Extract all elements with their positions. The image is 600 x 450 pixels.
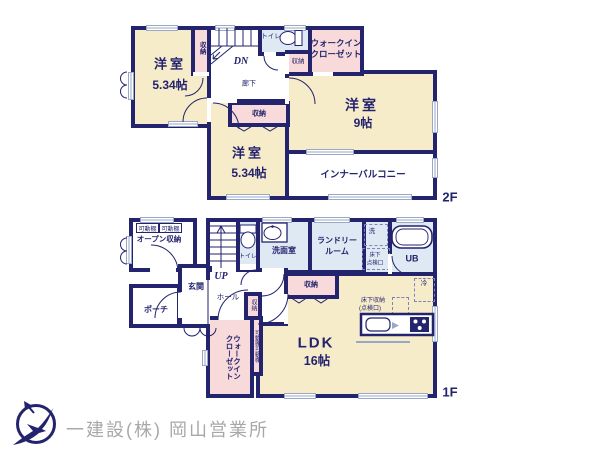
company-logo — [13, 401, 55, 445]
underfloor-hatch-label: 床下 — [369, 253, 380, 259]
closet-label: 収納 — [198, 42, 205, 55]
window-marker — [328, 194, 412, 200]
wic-label-line: クローゼット — [226, 317, 234, 397]
toilet-label: トイレ — [261, 34, 281, 41]
shutter-arc — [121, 72, 128, 85]
door-opening — [313, 72, 333, 76]
room-1f-laundry — [308, 218, 366, 274]
window-marker — [202, 350, 208, 366]
room-name-label: 洋室 — [345, 98, 379, 112]
window-marker — [432, 158, 438, 178]
window-marker — [215, 25, 235, 31]
underfloor-storage-label: (点検口) — [359, 306, 381, 312]
open-storage-label: オープン収納 — [137, 235, 182, 243]
room-1f-stairs — [206, 218, 240, 270]
washer-label: 洗 — [369, 229, 376, 236]
wic-label: クローゼット — [310, 50, 361, 59]
shelf-tag-label: 可動棚 — [138, 224, 156, 233]
window-marker — [284, 393, 316, 399]
floor-tag-1f: 1F — [442, 385, 457, 400]
underfloor-storage-label: 床下収納 — [361, 298, 385, 304]
wic-label-line: ウォークイン — [233, 317, 241, 397]
room-size-label: 9帖 — [354, 117, 373, 129]
room-size-label: 5.34帖 — [231, 167, 266, 179]
window-marker — [314, 217, 350, 223]
room-name-label: LDK — [298, 336, 335, 351]
laundry-label: ルーム — [325, 248, 349, 256]
washroom-label: 洗面室 — [272, 247, 296, 255]
window-marker — [168, 121, 198, 127]
fridge-label: 冷 — [421, 281, 428, 288]
window-marker — [128, 72, 134, 100]
closet-label: 収納 — [250, 299, 256, 311]
wic-label: ウォークイン — [310, 39, 361, 48]
window-marker — [262, 217, 292, 223]
shutter-arc — [121, 85, 128, 98]
door-opening — [206, 280, 210, 324]
underfloor-hatch-label: 点検口 — [367, 261, 384, 267]
bath-label: UB — [406, 255, 419, 264]
window-marker — [146, 25, 178, 31]
door-opening — [388, 254, 392, 274]
room-name-label: 洋室 — [154, 58, 186, 71]
floor-plan-canvas: 洋室 5.34帖 収納 DN トイレ 収納 ウォークイン クローゼット 廊下 収… — [0, 0, 600, 450]
window-marker — [226, 194, 270, 200]
window-marker — [358, 393, 428, 399]
door-opening — [211, 99, 237, 103]
door-opening — [178, 292, 182, 318]
closet-label: 収納 — [292, 59, 305, 66]
floor-tag-2f: 2F — [442, 190, 457, 205]
room-size-label: 16帖 — [304, 355, 330, 368]
door-opening — [150, 264, 176, 272]
balcony-label: インナーバルコニー — [320, 170, 405, 180]
door-opening — [285, 78, 289, 104]
closet-label: 収納 — [304, 282, 318, 289]
window-marker — [306, 149, 354, 155]
door-opening — [193, 72, 209, 76]
stairs-down-label: DN — [234, 57, 248, 67]
door-opening — [262, 268, 284, 274]
shelf-strip-label: 可動棚可動棚 — [253, 330, 259, 363]
window-marker — [396, 217, 424, 223]
wic-label: ウォークイン クローゼット — [226, 317, 241, 397]
underfloor-storage-box — [392, 297, 409, 315]
door-opening — [264, 52, 276, 56]
stairs-up-label: UP — [214, 272, 227, 282]
closet-label: 収納 — [252, 111, 266, 118]
window-marker — [432, 306, 438, 342]
door-opening — [240, 264, 256, 270]
laundry-label: ランドリー — [317, 237, 357, 245]
porch-label: ポーチ — [144, 306, 168, 314]
shelf-tag-label: 可動棚 — [161, 224, 179, 233]
room-1f-unit-bath — [388, 218, 437, 280]
room-size-label: 5.34帖 — [152, 79, 187, 91]
shelf-tag: 可動棚 — [159, 223, 182, 233]
shelf-tag: 可動棚 — [136, 223, 159, 233]
door-opening — [285, 54, 289, 74]
window-marker — [284, 25, 306, 31]
window-marker — [126, 236, 132, 264]
toilet-label: トイレ — [239, 254, 257, 260]
entrance-label: 玄関 — [188, 283, 204, 291]
hallway-label: 廊下 — [242, 81, 256, 88]
room-name-label: 洋室 — [232, 147, 264, 160]
washer-space-box — [364, 224, 388, 246]
window-marker — [432, 101, 438, 133]
door-opening — [284, 294, 288, 324]
company-name: 一建設(株) 岡山営業所 — [66, 416, 269, 442]
swallow-mark — [13, 408, 53, 445]
hall-label: ホール — [217, 293, 240, 301]
entrance-door-arc — [184, 328, 200, 336]
